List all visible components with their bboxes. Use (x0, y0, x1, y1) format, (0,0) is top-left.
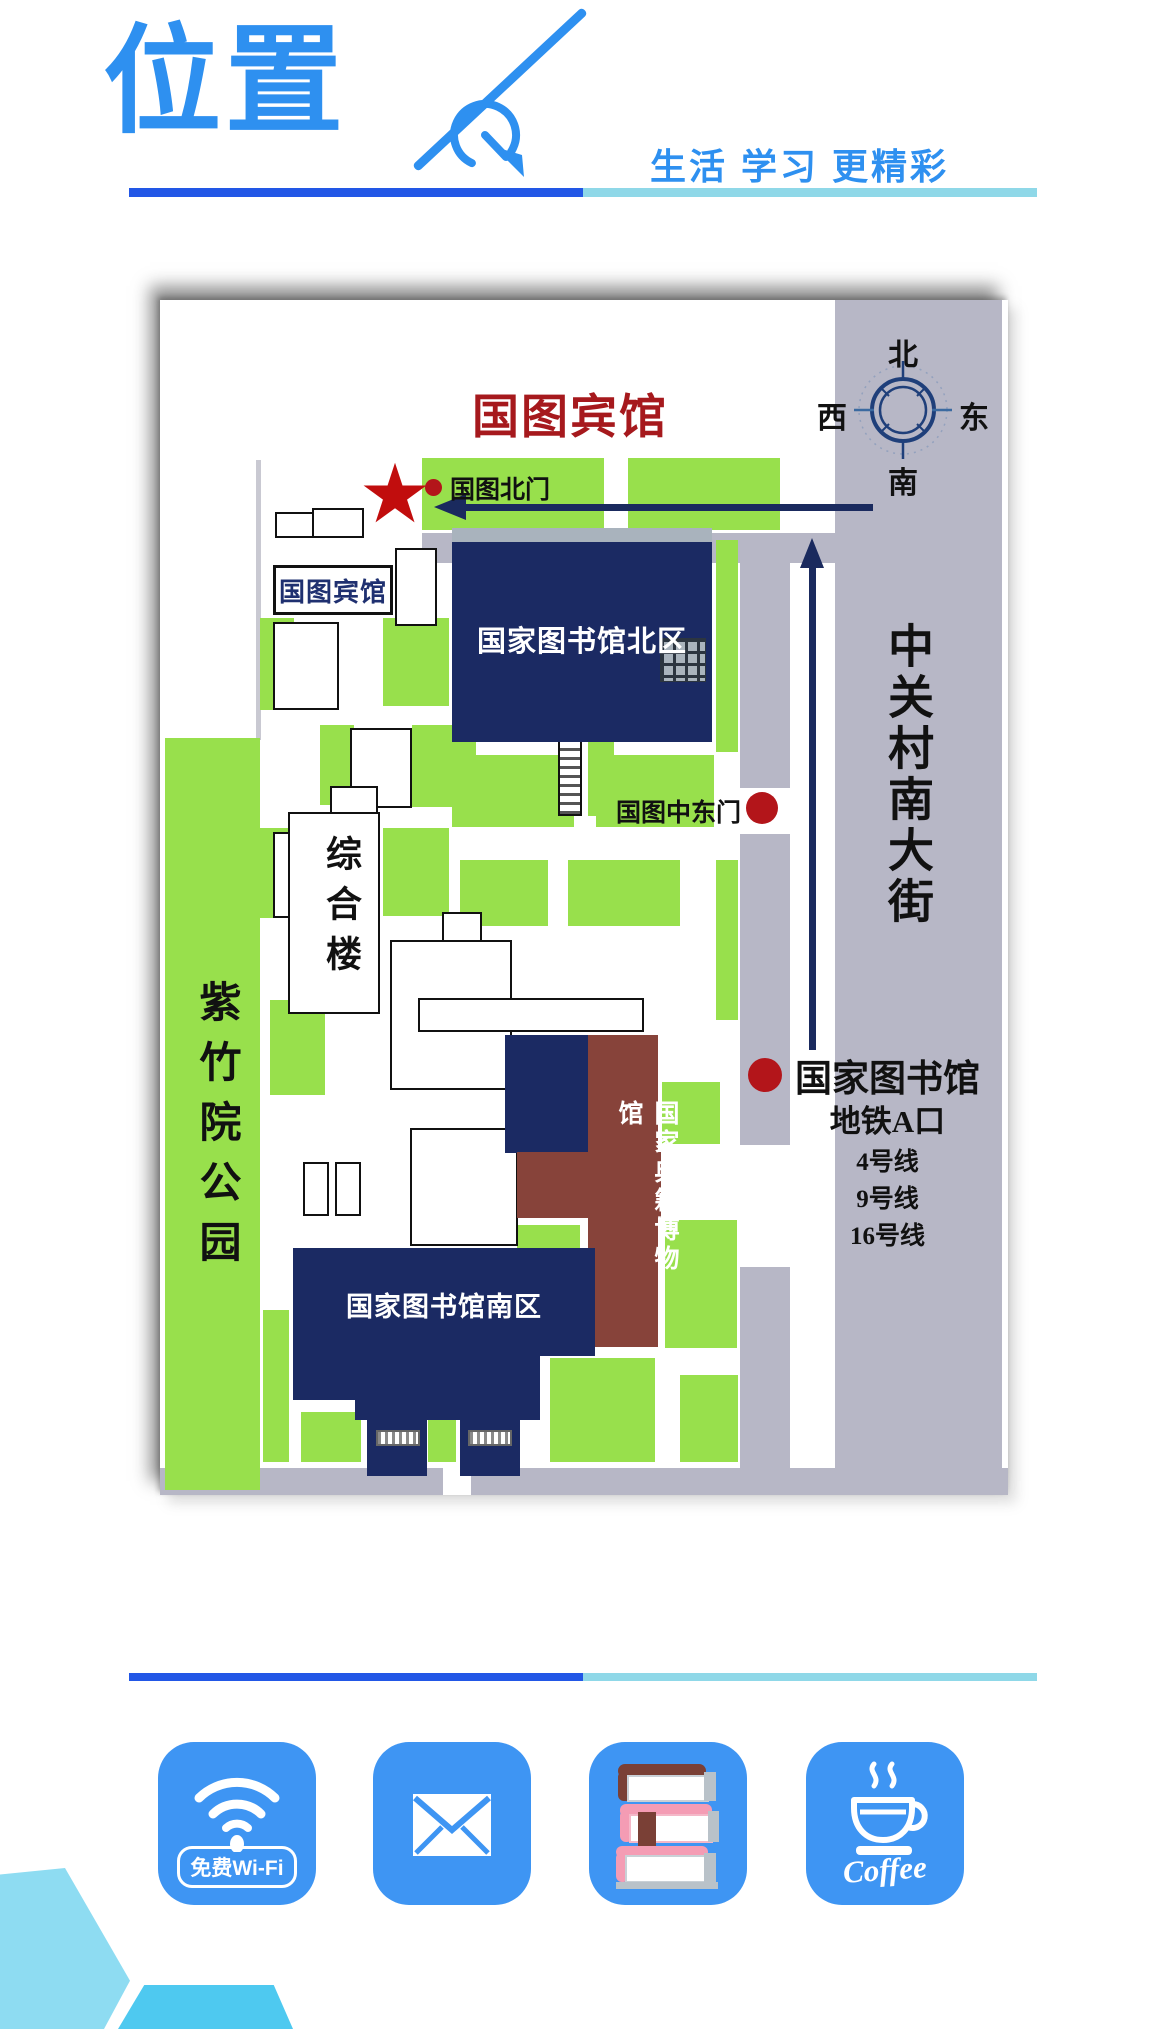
building (442, 912, 482, 942)
lawn (716, 860, 738, 1020)
compass-west: 西 (817, 393, 847, 437)
north-gate-label: 国图北门 (450, 470, 550, 506)
lawn (428, 1418, 456, 1462)
subway-gap (738, 1145, 792, 1267)
building (335, 1162, 361, 1216)
annex-building (505, 1035, 590, 1153)
mid-east-gate-label: 国图中东门 (616, 793, 741, 829)
clock-icon (440, 95, 535, 185)
subway-name: 国家图书馆 (790, 1048, 985, 1102)
hotel-label-box: 国图宾馆 (273, 565, 393, 615)
location-map: 北 南 西 东 中关村南大街 (160, 300, 1008, 1495)
south-boundary-road (160, 1468, 1008, 1495)
building (395, 548, 437, 626)
coffee-icon (830, 1760, 940, 1860)
museum-label: 国家典籍博物馆 (610, 1100, 682, 1300)
compass-east: 东 (959, 393, 989, 437)
lawn (301, 1412, 361, 1462)
lawn (550, 1358, 655, 1462)
lawn (568, 860, 680, 926)
compass-south: 南 (815, 458, 991, 502)
footer-rule-light (583, 1673, 1037, 1681)
north-library-label: 国家图书馆北区 (452, 618, 712, 660)
south-library-grille (376, 1430, 420, 1446)
north-library-roof (452, 528, 712, 542)
wifi-icon (185, 1760, 289, 1852)
complex-building-label: 综合楼 (315, 835, 367, 995)
mail-tile (373, 1742, 531, 1905)
south-library-mid (355, 1356, 540, 1420)
lawn (383, 618, 449, 706)
map-title: 国图宾馆 (428, 378, 712, 447)
header-rule-light (583, 188, 1037, 197)
south-library-foot (367, 1418, 427, 1476)
north-gate-dot (425, 479, 442, 496)
route-arrow-vertical (809, 566, 816, 1050)
mail-icon (397, 1774, 507, 1874)
hotel-label: 国图宾馆 (279, 572, 387, 609)
subway-dot (748, 1058, 782, 1092)
building (418, 998, 644, 1032)
footer-rule-dark (129, 1673, 583, 1681)
south-library-grille (468, 1430, 512, 1446)
route-arrow-vertical-head (800, 538, 824, 568)
subway-line-9: 9号线 (790, 1179, 985, 1215)
decor-hexagon (0, 1868, 130, 2029)
south-library-foot (460, 1418, 520, 1476)
street-name: 中关村南大街 (874, 622, 940, 942)
mid-east-gate-dot (746, 792, 778, 824)
lawn (270, 1000, 325, 1095)
subway-line-16: 16号线 (790, 1216, 985, 1252)
coffee-label: Coffee (842, 1849, 928, 1891)
tagline: 生活 学习 更精彩 (650, 138, 949, 190)
hotel-star: ★ (350, 450, 440, 540)
east-inner-road (740, 533, 790, 1468)
park-label: 紫竹院公园 (186, 980, 247, 1330)
south-library-west-arm (293, 1348, 357, 1400)
wifi-label: 免费Wi-Fi (177, 1846, 296, 1888)
subway-entrance: 地铁A口 (790, 1096, 985, 1141)
lawn (452, 755, 574, 827)
south-library-label: 国家图书馆南区 (293, 1285, 595, 1324)
wifi-tile: 免费Wi-Fi (158, 1742, 316, 1905)
compass-north: 北 (815, 330, 991, 374)
page-title: 位置 (103, 18, 347, 148)
header-rule-dark (129, 188, 583, 197)
building (303, 1162, 329, 1216)
compass: 北 南 西 东 (815, 330, 991, 490)
building (410, 1128, 518, 1246)
books-icon (604, 1754, 732, 1894)
coffee-tile: Coffee (806, 1742, 964, 1905)
lawn (680, 1375, 738, 1462)
books-tile (589, 1742, 747, 1905)
decor-trapezoid (118, 1985, 293, 2029)
lawn (263, 1310, 289, 1462)
complex-building-head (330, 786, 378, 814)
building (273, 622, 339, 710)
lawn (716, 540, 738, 752)
lawn (383, 828, 449, 916)
subway-line-4: 4号线 (790, 1142, 985, 1178)
lawn (628, 458, 780, 530)
